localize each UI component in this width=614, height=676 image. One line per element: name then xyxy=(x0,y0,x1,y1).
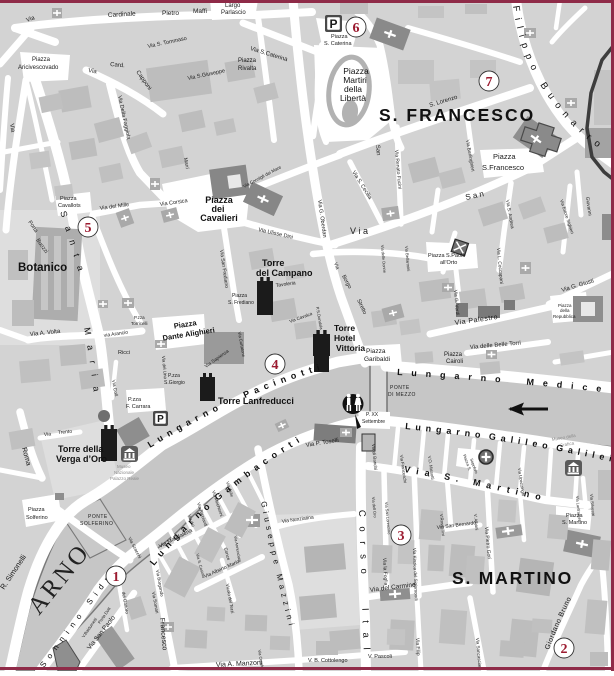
svg-text:S. Frediano: S. Frediano xyxy=(228,300,254,306)
svg-text:5: 5 xyxy=(85,221,92,236)
svg-text:Piazza: Piazza xyxy=(232,293,247,299)
svg-text:S. Martino: S. Martino xyxy=(562,520,587,526)
svg-text:S.Giorgio: S.Giorgio xyxy=(164,380,185,386)
svg-text:Libertà: Libertà xyxy=(340,93,366,103)
svg-text:all'Orto: all'Orto xyxy=(440,260,457,266)
svg-text:Torre: Torre xyxy=(262,258,284,268)
svg-text:Museo: Museo xyxy=(117,464,131,469)
svg-text:V. Pascoli: V. Pascoli xyxy=(368,654,392,660)
svg-text:Pietro: Pietro xyxy=(162,10,179,17)
svg-text:S. Caterina: S. Caterina xyxy=(324,41,352,47)
svg-text:7: 7 xyxy=(486,75,493,90)
svg-text:Largo: Largo xyxy=(225,3,241,9)
svg-text:P.zza: P.zza xyxy=(128,397,142,403)
svg-text:Cavallots: Cavallots xyxy=(58,203,81,209)
svg-text:Cairoli: Cairoli xyxy=(446,359,463,365)
svg-text:PONTE: PONTE xyxy=(390,385,410,391)
svg-text:Parlascio: Parlascio xyxy=(221,10,246,16)
svg-text:S.Francesco: S.Francesco xyxy=(482,163,524,172)
svg-text:3: 3 xyxy=(398,529,405,544)
svg-text:1: 1 xyxy=(113,570,120,585)
svg-text:S. FRANCESCO: S. FRANCESCO xyxy=(379,105,535,125)
svg-text:Repubblica: Repubblica xyxy=(553,314,576,319)
svg-text:PONTE: PONTE xyxy=(88,514,108,520)
svg-text:Piazza: Piazza xyxy=(238,58,257,64)
svg-text:S. MARTINO: S. MARTINO xyxy=(452,568,573,588)
svg-text:F. Carrara: F. Carrara xyxy=(126,404,151,410)
svg-text:Settembre: Settembre xyxy=(362,419,385,425)
svg-text:Maffi: Maffi xyxy=(193,8,207,15)
svg-text:del Campano: del Campano xyxy=(256,268,313,278)
svg-text:Botanico: Botanico xyxy=(18,262,67,274)
svg-text:Palazzo Reale: Palazzo Reale xyxy=(110,476,140,481)
svg-text:Garibaldi: Garibaldi xyxy=(364,356,390,363)
svg-text:Nazionale: Nazionale xyxy=(114,470,135,475)
svg-text:Via Filip: Via Filip xyxy=(414,638,421,656)
svg-text:Aricivescovado: Aricivescovado xyxy=(18,65,59,71)
svg-text:P.zza: P.zza xyxy=(134,315,145,320)
svg-text:DI MEZZO: DI MEZZO xyxy=(388,392,416,398)
svg-text:Cavalieri: Cavalieri xyxy=(200,213,238,223)
svg-text:P.zza: P.zza xyxy=(168,373,180,379)
svg-text:Hotel: Hotel xyxy=(334,333,355,343)
svg-text:Rivalta: Rivalta xyxy=(238,66,257,72)
svg-text:Cardinale: Cardinale xyxy=(108,11,137,19)
svg-text:Piazza: Piazza xyxy=(493,152,516,161)
svg-text:Vittoria: Vittoria xyxy=(336,343,365,353)
svg-text:Piazza: Piazza xyxy=(566,513,583,519)
svg-text:V i a: V i a xyxy=(350,226,368,236)
svg-text:6: 6 xyxy=(353,21,360,36)
svg-text:Piazza: Piazza xyxy=(331,34,348,40)
svg-text:Piazza: Piazza xyxy=(444,352,463,358)
svg-text:Via: Via xyxy=(44,431,52,438)
svg-text:P: P xyxy=(329,17,337,31)
svg-text:V. B. Cottolengo: V. B. Cottolengo xyxy=(308,658,348,664)
svg-text:P: P xyxy=(157,414,164,425)
svg-text:Torre: Torre xyxy=(334,323,355,333)
svg-text:Solferino: Solferino xyxy=(26,515,48,521)
svg-text:Torre della: Torre della xyxy=(58,444,104,454)
svg-text:Trento: Trento xyxy=(58,429,73,436)
svg-text:Verga d’Oro: Verga d’Oro xyxy=(56,454,108,464)
svg-text:2: 2 xyxy=(561,642,568,657)
svg-text:Piazza: Piazza xyxy=(60,196,77,202)
svg-text:della: della xyxy=(560,308,570,313)
svg-text:Piazza: Piazza xyxy=(32,57,51,63)
svg-text:Piazza S.Paolo: Piazza S.Paolo xyxy=(428,253,465,259)
svg-text:Piazza: Piazza xyxy=(28,507,45,513)
svg-text:P. XX: P. XX xyxy=(366,412,379,418)
svg-text:SOLFERINO: SOLFERINO xyxy=(80,521,113,527)
svg-text:San: San xyxy=(374,145,381,156)
svg-text:Ricci: Ricci xyxy=(118,350,130,356)
svg-text:Piazza: Piazza xyxy=(366,348,386,355)
svg-text:4: 4 xyxy=(272,358,279,373)
svg-text:Torricelli: Torricelli xyxy=(131,321,148,326)
